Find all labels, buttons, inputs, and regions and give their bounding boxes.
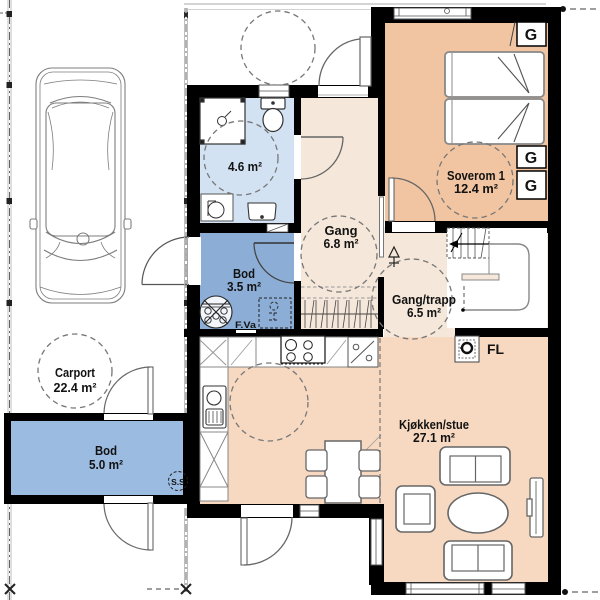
svg-text:22.4 m²: 22.4 m² — [54, 380, 98, 395]
svg-text:12.4 m²: 12.4 m² — [454, 181, 499, 196]
svg-text:6.8 m²: 6.8 m² — [324, 236, 360, 251]
svg-text:F.Va: F.Va — [235, 320, 257, 331]
svg-text:G: G — [525, 150, 537, 167]
svg-text:3.5 m²: 3.5 m² — [227, 279, 262, 294]
svg-text:G: G — [525, 178, 537, 195]
svg-text:G: G — [525, 27, 537, 44]
svg-text:5.0 m²: 5.0 m² — [89, 457, 124, 472]
svg-text:FL: FL — [487, 341, 504, 357]
svg-text:S.S: S.S — [171, 477, 185, 487]
svg-text:Bod: Bod — [95, 443, 117, 458]
svg-text:27.1 m²: 27.1 m² — [413, 430, 456, 445]
svg-text:Carport: Carport — [55, 365, 96, 380]
svg-text:6.5 m²: 6.5 m² — [407, 305, 442, 320]
svg-text:4.6 m²: 4.6 m² — [228, 159, 263, 174]
